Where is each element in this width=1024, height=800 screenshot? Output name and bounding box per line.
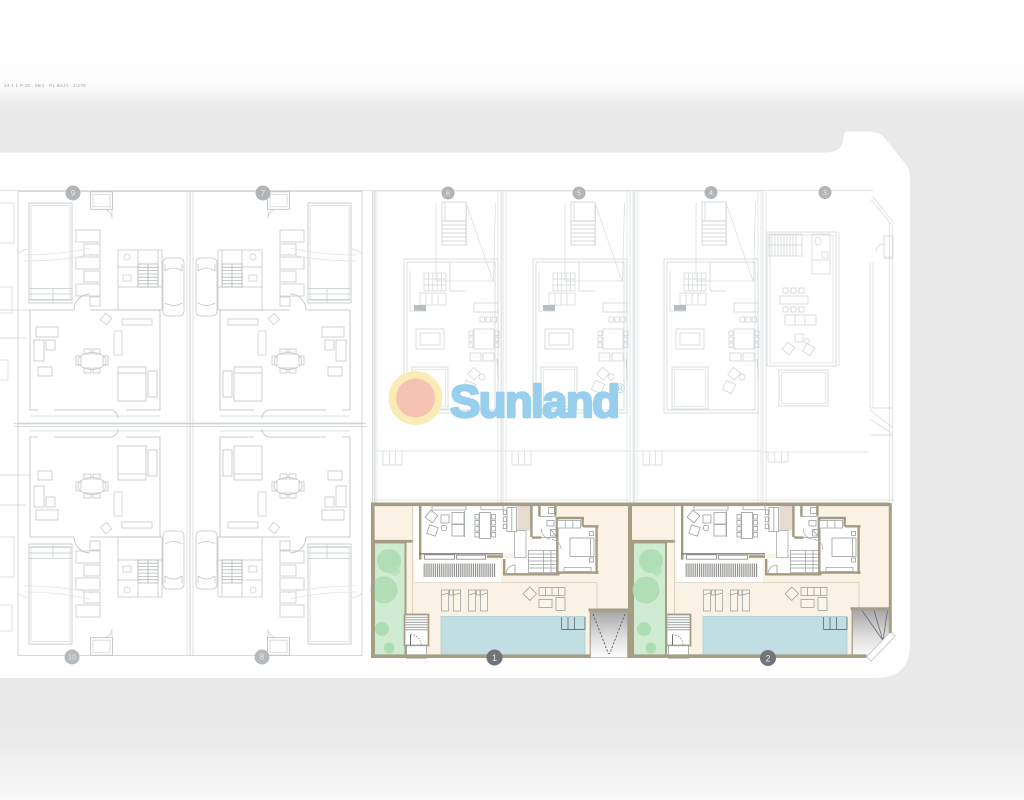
svg-text:2: 2 (765, 653, 770, 663)
svg-text:9: 9 (71, 189, 76, 198)
svg-text:14-1 1 P-10 · 05/1 · PL BAJA ·: 14-1 1 P-10 · 05/1 · PL BAJA · 1:175 (4, 83, 86, 88)
svg-text:Sunland: Sunland (450, 376, 618, 427)
svg-text:3: 3 (823, 188, 827, 197)
svg-text:8: 8 (260, 653, 265, 662)
svg-text:7: 7 (261, 189, 266, 198)
svg-text:4: 4 (709, 188, 713, 197)
svg-text:1: 1 (492, 653, 497, 663)
svg-text:®: ® (615, 381, 625, 396)
svg-text:6: 6 (446, 189, 450, 198)
svg-text:10: 10 (68, 655, 76, 662)
svg-text:5: 5 (577, 189, 581, 198)
